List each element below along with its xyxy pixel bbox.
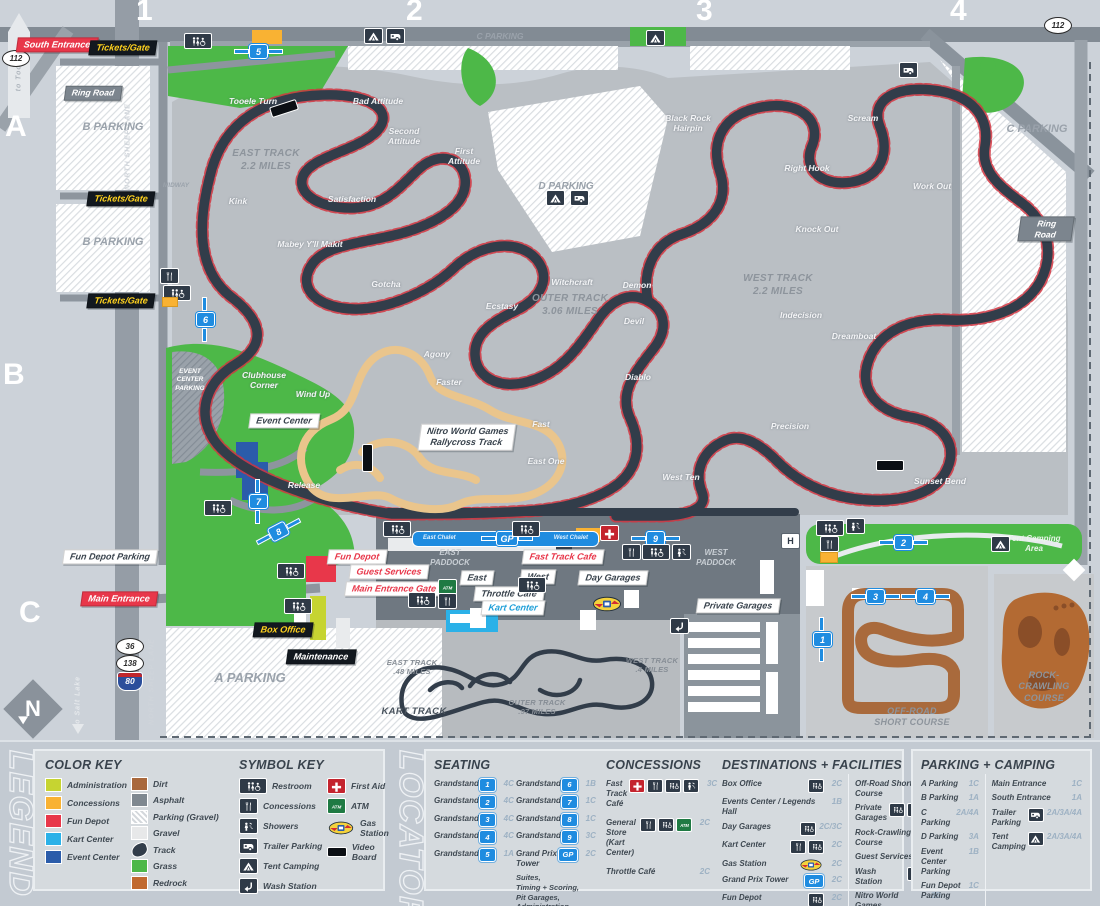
parking-row: D Parking3A xyxy=(921,832,979,842)
private-garages-tag: Private Garages xyxy=(696,598,781,613)
symbol-key-label: Trailer Parking xyxy=(263,841,322,851)
c-parking-label-top: C PARKING xyxy=(476,31,523,41)
symbol-key-row: ATM xyxy=(327,798,389,814)
grid-ref: 2A/3A/4A xyxy=(1047,832,1082,841)
grid-ref: 2C xyxy=(827,779,842,788)
color-key-label: Event Center xyxy=(67,852,119,862)
video-board-icon xyxy=(876,460,904,471)
symbol-key-row: Wash Station xyxy=(239,878,327,894)
grandstand-6-marker: 6 xyxy=(196,312,215,327)
helipad-icon: H xyxy=(781,533,800,549)
corner-label: Kink xyxy=(229,196,247,206)
concessions-label: General Store (Kart Center) xyxy=(606,818,638,858)
b-parking-south xyxy=(56,204,150,292)
restroom-icon xyxy=(239,778,267,794)
corner-label: West Ten xyxy=(662,472,699,482)
kart-east-label: EAST TRACK .48 MILES xyxy=(387,658,438,677)
concessions-row: Throttle Café2C xyxy=(606,867,710,877)
color-swatch xyxy=(131,793,148,807)
symbol-key-row: Trailer Parking xyxy=(239,838,327,854)
corner-label: Diablo xyxy=(625,372,651,382)
seating-label: Grandstand xyxy=(434,849,479,859)
restroom-icon xyxy=(808,779,824,793)
corner-label: Devil xyxy=(624,316,644,326)
b-parking-label-1: B PARKING xyxy=(83,121,144,133)
grandstand-9-number: 9 xyxy=(653,534,658,544)
video-board-icon xyxy=(327,847,347,857)
tent-icon xyxy=(239,858,258,874)
grandstand-6-number: 6 xyxy=(203,315,208,325)
color-key-label: Concessions xyxy=(67,798,120,808)
color-key-row: Grass xyxy=(131,859,227,873)
main-entrance-tag: Main Entrance xyxy=(80,591,158,606)
grid-ref: 1C xyxy=(581,796,596,805)
symbol-key-row: First Aid xyxy=(327,778,389,794)
event-center-parking-label: EVENT CENTER PARKING xyxy=(175,368,205,393)
grid-ref: 1A xyxy=(1067,793,1082,802)
trailer-parking-icon xyxy=(570,190,589,206)
gas-station-icon xyxy=(592,596,622,612)
outer-track-label: OUTER TRACK 3.06 MILES xyxy=(532,293,608,318)
route-138-shield: 138 xyxy=(116,655,144,672)
seating-label: Grandstand xyxy=(434,779,479,789)
tent-camping-icon xyxy=(991,536,1010,552)
tent-icon xyxy=(1028,832,1044,846)
tickets-gate-tag-1: Tickets/Gate xyxy=(88,40,158,55)
grid-ref: 1B xyxy=(827,797,842,806)
fun-depot-parking-tag: Fun Depot Parking xyxy=(62,549,158,564)
color-swatch xyxy=(45,832,62,846)
grid-col-1: 1 xyxy=(136,0,153,28)
grid-ref: 2C xyxy=(827,840,842,849)
grid-ref: 1B xyxy=(581,779,596,788)
grass-dot xyxy=(980,58,996,74)
restroom-icon xyxy=(658,818,674,832)
parking-label: South Entrance xyxy=(992,793,1064,803)
grid-ref: 2C xyxy=(581,849,596,858)
grid-ref: 1A xyxy=(499,849,514,858)
symbol-key-label: Video Board xyxy=(352,842,389,862)
restroom-icon xyxy=(204,500,232,516)
nitro-rallycross-tag: Nitro World Games Rallycross Track xyxy=(417,424,516,451)
kart-west-label: WEST TRACK .4 MILES xyxy=(626,656,678,675)
concessions-icon xyxy=(820,536,839,552)
grid-ref: 2C xyxy=(827,893,842,902)
facility-icons xyxy=(640,818,692,832)
concessions-icon xyxy=(622,544,641,560)
gas-icon xyxy=(327,821,355,835)
kart-outer-label: OUTER TRACK .97 MILES xyxy=(508,698,565,717)
corner-label: Faster xyxy=(436,377,462,387)
grid-ref: 1A xyxy=(964,793,979,802)
color-key-label: Grass xyxy=(153,861,177,871)
color-key-label: Parking (Gravel) xyxy=(153,812,219,822)
grandstand-5-number: 5 xyxy=(256,47,261,57)
a-parking xyxy=(166,628,442,738)
first-aid-icon xyxy=(629,779,645,793)
grandstand-3-number: 3 xyxy=(873,592,878,602)
grid-ref: 2C/3C xyxy=(819,822,842,831)
grid-ref: 2C xyxy=(827,859,842,868)
corner-label: Release xyxy=(288,480,320,490)
box-office-tag: Box Office xyxy=(252,622,313,637)
color-swatch xyxy=(45,796,62,810)
concessions-icon xyxy=(438,593,457,609)
restroom-icon xyxy=(383,521,411,537)
facility-icons xyxy=(629,779,699,793)
east-paddock-label: EAST PADDOCK xyxy=(430,548,470,568)
corner-label: Agony xyxy=(424,349,450,359)
c-parking-label-right: C PARKING xyxy=(1007,123,1068,135)
color-key-title: COLOR KEY xyxy=(45,758,227,772)
destination-label: Fun Depot xyxy=(722,893,806,903)
seating-section: SEATING Grandstand14C Grandstand24C Gran… xyxy=(434,753,594,887)
grid-col-3: 3 xyxy=(696,0,713,28)
seating-label: Grandstand xyxy=(434,831,479,841)
grid-ref: 4C xyxy=(499,831,514,840)
wash-station-icon xyxy=(670,618,689,634)
grid-ref: 2A/4A xyxy=(956,808,979,817)
parking-label: Trailer Parking xyxy=(992,808,1026,828)
first-aid-icon xyxy=(327,778,346,794)
symbol-key-section: SYMBOL KEY Restroom Concessions Showers … xyxy=(239,753,389,887)
grandstand-badge: 5 xyxy=(479,848,496,862)
destinations-section: DESTINATIONS + FACILITIES Box Office2C E… xyxy=(722,753,941,887)
destination-label: Wash Station xyxy=(855,867,905,887)
grid-ref: 2C xyxy=(695,867,710,876)
grandstand-5-marker: 5 xyxy=(249,44,268,59)
seating-row: Grandstand44C xyxy=(434,831,512,844)
parking-label: Main Entrance xyxy=(992,779,1064,789)
parking-label: A Parking xyxy=(921,779,961,789)
concessions-icon xyxy=(640,818,656,832)
grandstand-badge: 9 xyxy=(561,830,578,844)
seating-row-gp: Grand Prix TowerGP2C xyxy=(516,849,596,869)
to-salt-lake-label: to Salt Lake xyxy=(75,652,82,752)
fun-depot-tag: Fun Depot xyxy=(327,549,388,564)
kart-track-label: KART TRACK xyxy=(382,706,447,718)
showers-icon xyxy=(239,818,258,834)
gp-tower-details: Suites, Timing + Scoring, Pit Garages, A… xyxy=(516,873,596,906)
corner-label: Gotcha xyxy=(371,279,400,289)
seating-row: Grandstand81C xyxy=(516,814,596,827)
color-key-label: Administration xyxy=(67,780,127,790)
west-track-label: WEST TRACK 2.2 MILES xyxy=(743,273,813,298)
corner-label: Precision xyxy=(771,421,809,431)
restroom-icon xyxy=(642,544,670,560)
corner-label: Fast xyxy=(532,419,549,429)
grandstand-3-marker: 3 xyxy=(866,589,885,604)
fast-track-cafe-tag: Fast Track Cafe xyxy=(521,549,604,564)
corner-label: Demon xyxy=(623,280,652,290)
color-key-row: Event Center xyxy=(45,850,131,864)
destination-row: Day Garages2C/3C xyxy=(722,822,842,836)
grid-ref: 1C xyxy=(581,814,596,823)
seating-row: Grandstand24C xyxy=(434,796,512,809)
grandstand-8-number: 8 xyxy=(274,526,283,537)
restroom-icon xyxy=(284,598,312,614)
color-swatch xyxy=(131,859,148,873)
symbol-key-label: Tent Camping xyxy=(263,861,319,871)
restroom-icon xyxy=(512,521,540,537)
corner-label: Knock Out xyxy=(796,224,839,234)
grid-ref: 4C xyxy=(499,779,514,788)
color-swatch-hatch xyxy=(131,810,148,824)
grid-ref: 2C xyxy=(695,818,710,827)
grid-row-b: B xyxy=(3,358,25,392)
parking-label: D Parking xyxy=(921,832,961,842)
destination-row: Grand Prix TowerGP2C xyxy=(722,875,842,888)
symbol-key-label: ATM xyxy=(351,801,369,811)
grid-ref: 3C xyxy=(702,779,717,788)
parking-title: PARKING + CAMPING xyxy=(921,758,1082,772)
rock-crawling-label: ROCK-CRAWLING COURSE xyxy=(1016,670,1072,704)
grandstand-2-marker: 2 xyxy=(894,535,913,550)
tent-camping-area-label: Tent Camping Area xyxy=(1007,534,1060,554)
concessions-icon xyxy=(647,779,663,793)
restroom-icon xyxy=(889,803,905,817)
parking-row: Main Entrance1C xyxy=(992,779,1082,789)
guest-services-tag: Guest Services xyxy=(348,564,429,579)
grid-ref: 1C xyxy=(1067,779,1082,788)
color-swatch xyxy=(131,777,148,791)
corner-label: Work Out xyxy=(913,181,951,191)
corner-label: Scream xyxy=(848,113,879,123)
symbol-key-label: Restroom xyxy=(272,781,312,791)
concessions-section: CONCESSIONS Fast Track Café 3C General S… xyxy=(606,753,710,887)
seating-row: Grandstand93C xyxy=(516,831,596,844)
grid-ref: 3A xyxy=(964,832,979,841)
symbol-key-label: Wash Station xyxy=(263,881,317,891)
color-key-label: Dirt xyxy=(153,779,168,789)
parking-row: C Parking2A/4A xyxy=(921,808,979,828)
parking-row: Fun Depot Parking1C xyxy=(921,881,979,901)
route-112-shield-right: 112 xyxy=(1044,17,1072,34)
color-key-label: Gravel xyxy=(153,828,179,838)
color-key-row: Concessions xyxy=(45,796,131,810)
trailer-parking-icon xyxy=(899,62,918,78)
grandstand-7-number: 7 xyxy=(256,497,261,507)
c-parking-top-2 xyxy=(690,46,850,70)
concessions-label: Fast Track Café xyxy=(606,779,627,809)
trailer-icon xyxy=(239,838,258,854)
color-key-label: Fun Depot xyxy=(67,816,109,826)
corner-label: Bad Attitude xyxy=(353,96,403,106)
corner-label: Tooele Turn xyxy=(229,96,277,106)
concessions-row: General Store (Kart Center) 2C xyxy=(606,818,710,858)
seating-label: Grandstand xyxy=(516,814,561,824)
tent-camping-icon xyxy=(546,190,565,206)
video-board-icon xyxy=(362,444,373,472)
east-garage-tag: East xyxy=(459,570,494,585)
north-sheep-lane-label-2: NORTH SHEEP LANE xyxy=(149,632,156,732)
destination-label: Day Garages xyxy=(722,822,798,832)
seating-title: SEATING xyxy=(434,758,594,772)
parking-label: Tent Camping xyxy=(992,832,1026,852)
corner-label: Ecstasy xyxy=(486,301,518,311)
destination-label: Private Garages xyxy=(855,803,887,823)
restroom-icon xyxy=(808,840,824,854)
color-key-section: COLOR KEY Administration Concessions Fun… xyxy=(45,753,227,887)
corner-label: Mabey Y'll Makit xyxy=(277,239,342,249)
gp-badge: GP xyxy=(804,874,824,888)
box-office-building xyxy=(310,596,326,640)
showers-icon xyxy=(846,518,865,534)
east-chalet-label: East Chalet xyxy=(423,535,456,541)
grid-col-2: 2 xyxy=(406,0,423,28)
parking-label: B Parking xyxy=(921,793,961,803)
symbol-key-row: Concessions xyxy=(239,798,327,814)
restroom-icon xyxy=(277,563,305,579)
parking-label: Event Center Parking xyxy=(921,847,961,877)
locator-box: SEATING Grandstand14C Grandstand24C Gran… xyxy=(424,749,904,891)
concessions-row: Fast Track Café 3C xyxy=(606,779,710,809)
route-36-shield: 36 xyxy=(116,638,144,655)
grandstand-badge: 6 xyxy=(561,778,578,792)
grandstand-7-marker: 7 xyxy=(249,494,268,509)
day-garages-tag: Day Garages xyxy=(577,570,648,585)
color-key-label: Asphalt xyxy=(153,795,184,805)
wash-icon xyxy=(239,878,258,894)
seating-row: Grandstand14C xyxy=(434,779,512,792)
color-key-row: Fun Depot xyxy=(45,814,131,828)
grandstand-1-marker: 1 xyxy=(813,632,832,647)
tickets-gate-tag-3: Tickets/Gate xyxy=(86,293,156,308)
seating-label: Grandstand xyxy=(516,831,561,841)
destination-row: Fun Depot2C xyxy=(722,893,842,906)
grandstand-badge: 8 xyxy=(561,813,578,827)
grid-ref: 2A/3A/4A xyxy=(1047,808,1082,817)
showers-icon xyxy=(672,544,691,560)
kart-center-tag: Kart Center xyxy=(480,600,545,615)
restroom-icon xyxy=(184,33,212,49)
concessions-label: Throttle Café xyxy=(606,867,692,877)
seating-label: Grand Prix Tower xyxy=(516,849,558,869)
symbol-key-label: First Aid xyxy=(351,781,385,791)
concessions-title: CONCESSIONS xyxy=(606,758,710,772)
atm-icon xyxy=(327,798,346,814)
corner-label: Clubhouse Corner xyxy=(242,370,286,390)
grid-ref: 2C xyxy=(827,875,842,884)
color-key-label: Kart Center xyxy=(67,834,113,844)
color-key-label: Track xyxy=(153,845,176,855)
corner-label: Second Attitude xyxy=(388,126,420,146)
offroad-garage xyxy=(806,570,824,606)
grid-ref: 1B xyxy=(964,847,979,856)
corner-label: Wind Up xyxy=(296,389,330,399)
destination-row: Events Center / Legends Hall1B xyxy=(722,797,842,817)
color-swatch xyxy=(45,778,62,792)
seating-row: Grandstand61B xyxy=(516,779,596,792)
restroom-icon xyxy=(800,822,816,836)
facility-map-page: ATM xyxy=(0,0,1100,906)
parking-row: South Entrance1A xyxy=(992,793,1082,803)
corner-label: Right Hook xyxy=(784,163,829,173)
destination-row: Kart Center2C xyxy=(722,840,842,854)
midway-label: MIDWAY xyxy=(163,182,189,189)
color-key-row: Asphalt xyxy=(131,793,227,807)
color-key-label: Redrock xyxy=(153,878,187,888)
a-parking-label: A PARKING xyxy=(214,670,286,685)
color-swatch xyxy=(131,876,148,890)
color-key-row: Kart Center xyxy=(45,832,131,846)
color-key-row: Gravel xyxy=(131,826,227,840)
restroom-icon xyxy=(665,779,681,793)
symbol-key-label: Gas Station xyxy=(360,818,389,838)
concessions-icon xyxy=(239,798,258,814)
gas-icon xyxy=(798,859,824,871)
destination-label: Nitro World Games Rallycross Track xyxy=(855,891,923,906)
grid-ref: 1C xyxy=(964,881,979,890)
parking-row: Event Center Parking1B xyxy=(921,847,979,877)
grid-ref: 4C xyxy=(499,796,514,805)
color-swatch xyxy=(45,814,62,828)
kart-center-sign xyxy=(450,614,470,623)
parking-row: Tent Camping2A/3A/4A xyxy=(992,832,1082,852)
symbol-key-row: Restroom xyxy=(239,778,327,794)
symbol-key-label: Showers xyxy=(263,821,298,831)
seating-row: Grandstand34C xyxy=(434,814,512,827)
tent-camping-icon xyxy=(646,30,665,46)
symbol-key-row: Video Board xyxy=(327,842,389,862)
tent-camping-icon xyxy=(364,28,383,44)
parking-row: A Parking1C xyxy=(921,779,979,789)
restroom-icon xyxy=(408,592,436,608)
color-key-row: Parking (Gravel) xyxy=(131,810,227,824)
legend-box: COLOR KEY Administration Concessions Fun… xyxy=(33,749,385,891)
west-paddock-building xyxy=(760,560,774,594)
grid-ref: 1C xyxy=(964,779,979,788)
symbol-key-row: Showers xyxy=(239,818,327,834)
south-entrance-tag: South Entrance xyxy=(16,37,99,52)
gp-badge: GP xyxy=(558,848,578,862)
corner-label: Dreamboat xyxy=(832,331,876,341)
corner-label: Black Rock Hairpin xyxy=(665,113,711,133)
corner-label: Indecision xyxy=(780,310,822,320)
grid-col-4: 4 xyxy=(950,0,967,28)
trailer-icon xyxy=(1028,808,1044,822)
west-chalet-label: West Chalet xyxy=(554,535,588,541)
parking-label: Fun Depot Parking xyxy=(921,881,961,901)
interstate-80-shield: 80 xyxy=(117,672,143,691)
showers-icon xyxy=(683,779,699,793)
color-key-row: Dirt xyxy=(131,777,227,791)
corner-label: Satisfaction xyxy=(328,194,376,204)
grandstand-badge: 2 xyxy=(479,795,496,809)
corner-label: East One xyxy=(528,456,565,466)
seating-label: Grandstand xyxy=(434,814,479,824)
color-key-row: Redrock xyxy=(131,876,227,890)
symbol-key-label: Concessions xyxy=(263,801,316,811)
grandstand-2-number: 2 xyxy=(901,538,906,548)
west-paddock-label: WEST PADDOCK xyxy=(696,548,736,568)
restroom-icon xyxy=(808,893,824,906)
grandstand-1-number: 1 xyxy=(820,635,825,645)
maintenance-building xyxy=(336,618,350,648)
grandstand-4-marker: 4 xyxy=(916,589,935,604)
concessions-icon xyxy=(160,268,179,284)
trailer-parking-icon xyxy=(386,28,405,44)
maintenance-tag: Maintenance xyxy=(286,649,357,664)
grid-row-c: C xyxy=(19,596,41,630)
corner-label: Sunset Bend xyxy=(914,476,966,486)
seating-label: Grandstand xyxy=(434,796,479,806)
parking-row: B Parking1A xyxy=(921,793,979,803)
corner-label: Witchcraft xyxy=(551,277,592,287)
concessions-icon xyxy=(790,840,806,854)
corner-label: First Attitude xyxy=(448,146,480,166)
grandstand-badge: 3 xyxy=(479,813,496,827)
